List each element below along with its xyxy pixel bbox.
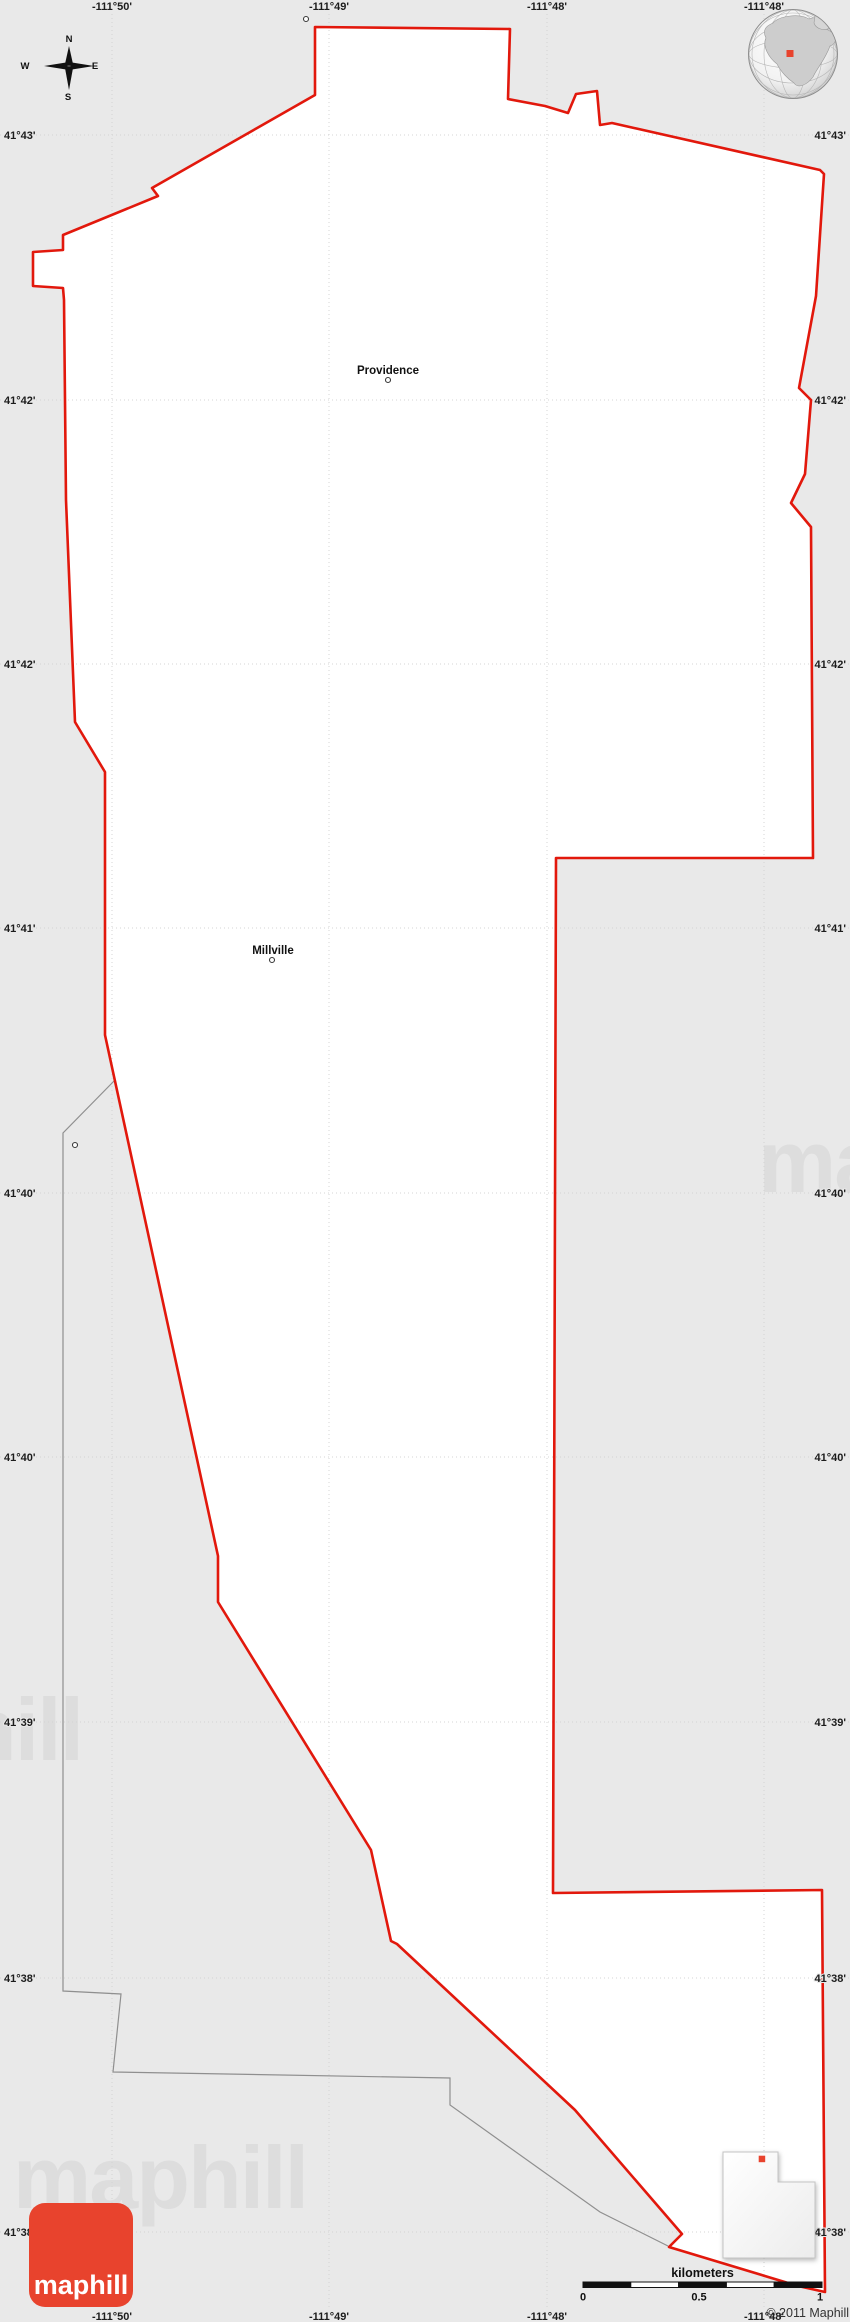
town-label: Millville — [252, 945, 294, 957]
longitude-label-top: -111°48' — [527, 1, 567, 13]
latitude-label-left: 41°40' — [4, 1188, 36, 1200]
latitude-label-right: 41°38' — [815, 1973, 847, 1985]
scale-bar-segment — [679, 2282, 727, 2288]
latitude-label-right: 41°38' — [815, 2227, 847, 2239]
logo-text[interactable]: maphill — [34, 2270, 129, 2300]
longitude-label-bottom: -111°50' — [92, 2311, 132, 2322]
latitude-label-right: 41°41' — [815, 923, 847, 935]
latitude-label-left: 41°40' — [4, 1452, 36, 1464]
latitude-label-left: 41°38' — [4, 1973, 36, 1985]
latitude-label-left: 41°39' — [4, 1717, 36, 1729]
town-marker — [270, 958, 275, 963]
locator-globe — [749, 10, 838, 99]
scale-bar-tick: 0.5 — [691, 2292, 706, 2304]
globe-location-marker — [787, 50, 794, 57]
latitude-label-left: 41°43' — [4, 130, 36, 142]
copyright-text: © 2011 Maphill — [766, 2306, 849, 2320]
scale-bar-segment — [631, 2282, 679, 2288]
scale-bar-segment — [774, 2282, 822, 2288]
inset-location-marker — [759, 2156, 766, 2163]
latitude-label-right: 41°40' — [815, 1452, 847, 1464]
scale-bar-tick: 0 — [580, 2292, 586, 2304]
longitude-label-top: -111°49' — [309, 1, 349, 13]
scale-bar-segment — [726, 2282, 774, 2288]
settlement-marker — [73, 1143, 78, 1148]
scale-bar-segment — [583, 2282, 631, 2288]
latitude-label-right: 41°39' — [815, 1717, 847, 1729]
latitude-label-right: 41°43' — [815, 130, 847, 142]
compass-label-n: N — [66, 34, 73, 45]
latitude-label-right: 41°42' — [815, 659, 847, 671]
scale-bar-title: kilometers — [671, 2266, 734, 2280]
latitude-label-left: 41°42' — [4, 659, 36, 671]
compass-label-w: W — [21, 61, 30, 72]
town-marker — [386, 378, 391, 383]
latitude-label-right: 41°42' — [815, 395, 847, 407]
longitude-label-top: -111°50' — [92, 1, 132, 13]
longitude-label-bottom: -111°48' — [527, 2311, 567, 2322]
compass-label-s: S — [65, 92, 71, 103]
maphill-watermark: maphill — [0, 1680, 82, 1779]
settlement-marker — [304, 17, 309, 22]
compass-label-e: E — [92, 61, 98, 72]
longitude-label-bottom: -111°49' — [309, 2311, 349, 2322]
longitude-label-top: -111°48' — [744, 1, 784, 13]
latitude-label-right: 41°40' — [815, 1188, 847, 1200]
map-canvas: maphillmaphillmaphill ProvidenceMillvill… — [0, 0, 850, 2322]
maphill-logo[interactable]: maphill — [29, 2203, 133, 2307]
latitude-label-left: 41°41' — [4, 923, 36, 935]
town-label: Providence — [357, 365, 419, 377]
latitude-label-left: 41°42' — [4, 395, 36, 407]
scale-bar-tick: 1 — [817, 2292, 823, 2304]
